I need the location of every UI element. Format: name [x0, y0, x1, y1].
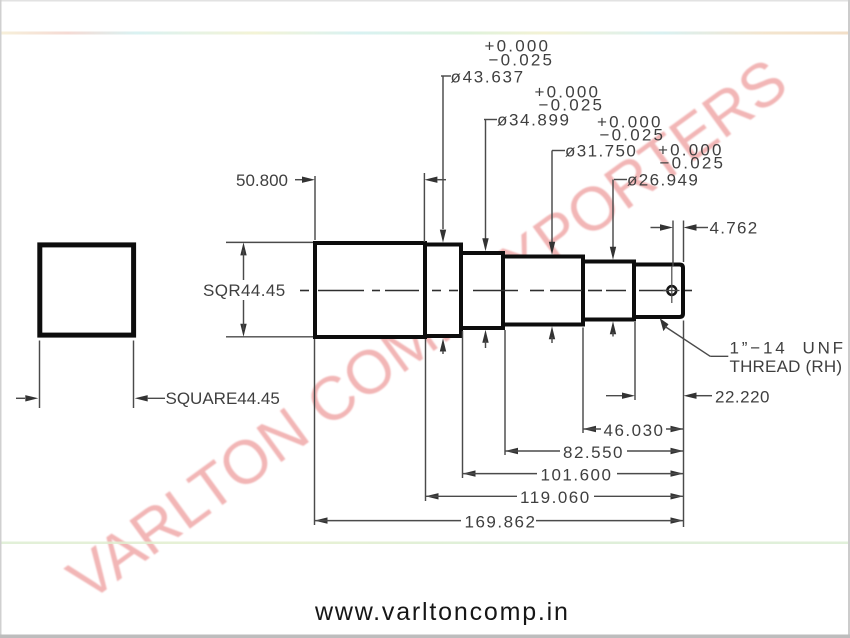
svg-text:46.030: 46.030: [604, 421, 665, 440]
svg-text:ø43.637: ø43.637: [451, 68, 525, 87]
svg-text:THREAD (RH): THREAD (RH): [730, 357, 843, 376]
svg-text:ø31.750: ø31.750: [565, 142, 637, 161]
svg-text:50.800: 50.800: [236, 171, 288, 190]
svg-text:ø26.949: ø26.949: [627, 171, 699, 190]
svg-text:169.862: 169.862: [465, 513, 537, 532]
svg-text:1”−14 UNF: 1”−14 UNF: [730, 339, 846, 358]
svg-text:101.600: 101.600: [541, 466, 613, 485]
svg-text:82.550: 82.550: [563, 443, 624, 462]
svg-text:119.060: 119.060: [520, 488, 591, 507]
svg-text:ø34.899: ø34.899: [497, 111, 571, 130]
svg-text:22.220: 22.220: [715, 388, 770, 407]
svg-text:www.varltoncomp.in: www.varltoncomp.in: [314, 598, 570, 626]
svg-text:4.762: 4.762: [710, 219, 759, 238]
svg-text:SQR44.45: SQR44.45: [203, 281, 286, 300]
svg-text:SQUARE44.45: SQUARE44.45: [166, 389, 280, 408]
